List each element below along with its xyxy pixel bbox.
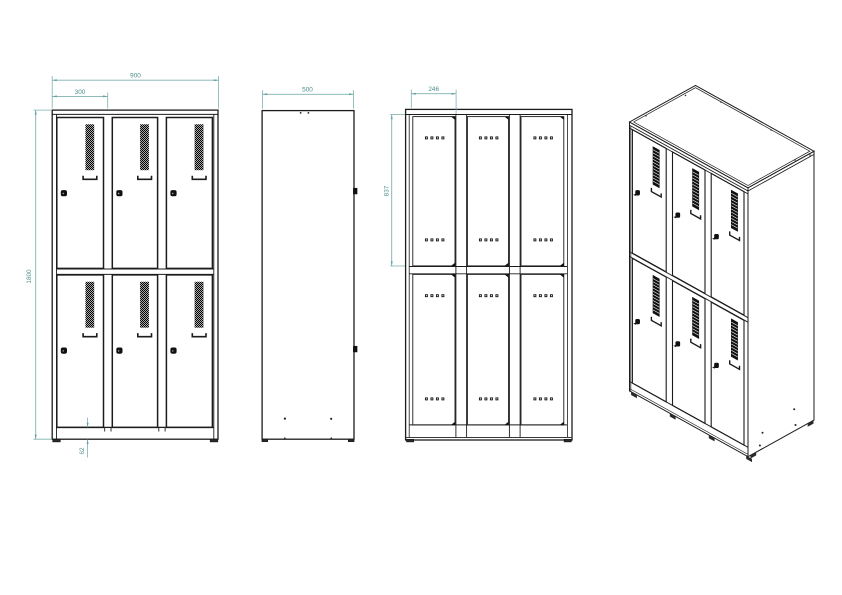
svg-text:500: 500 (302, 86, 313, 93)
svg-text:1800: 1800 (26, 269, 33, 284)
svg-text:62: 62 (79, 447, 86, 455)
svg-text:300: 300 (75, 89, 86, 96)
svg-text:837: 837 (384, 185, 391, 196)
svg-text:246: 246 (428, 86, 439, 93)
svg-text:900: 900 (130, 73, 141, 80)
